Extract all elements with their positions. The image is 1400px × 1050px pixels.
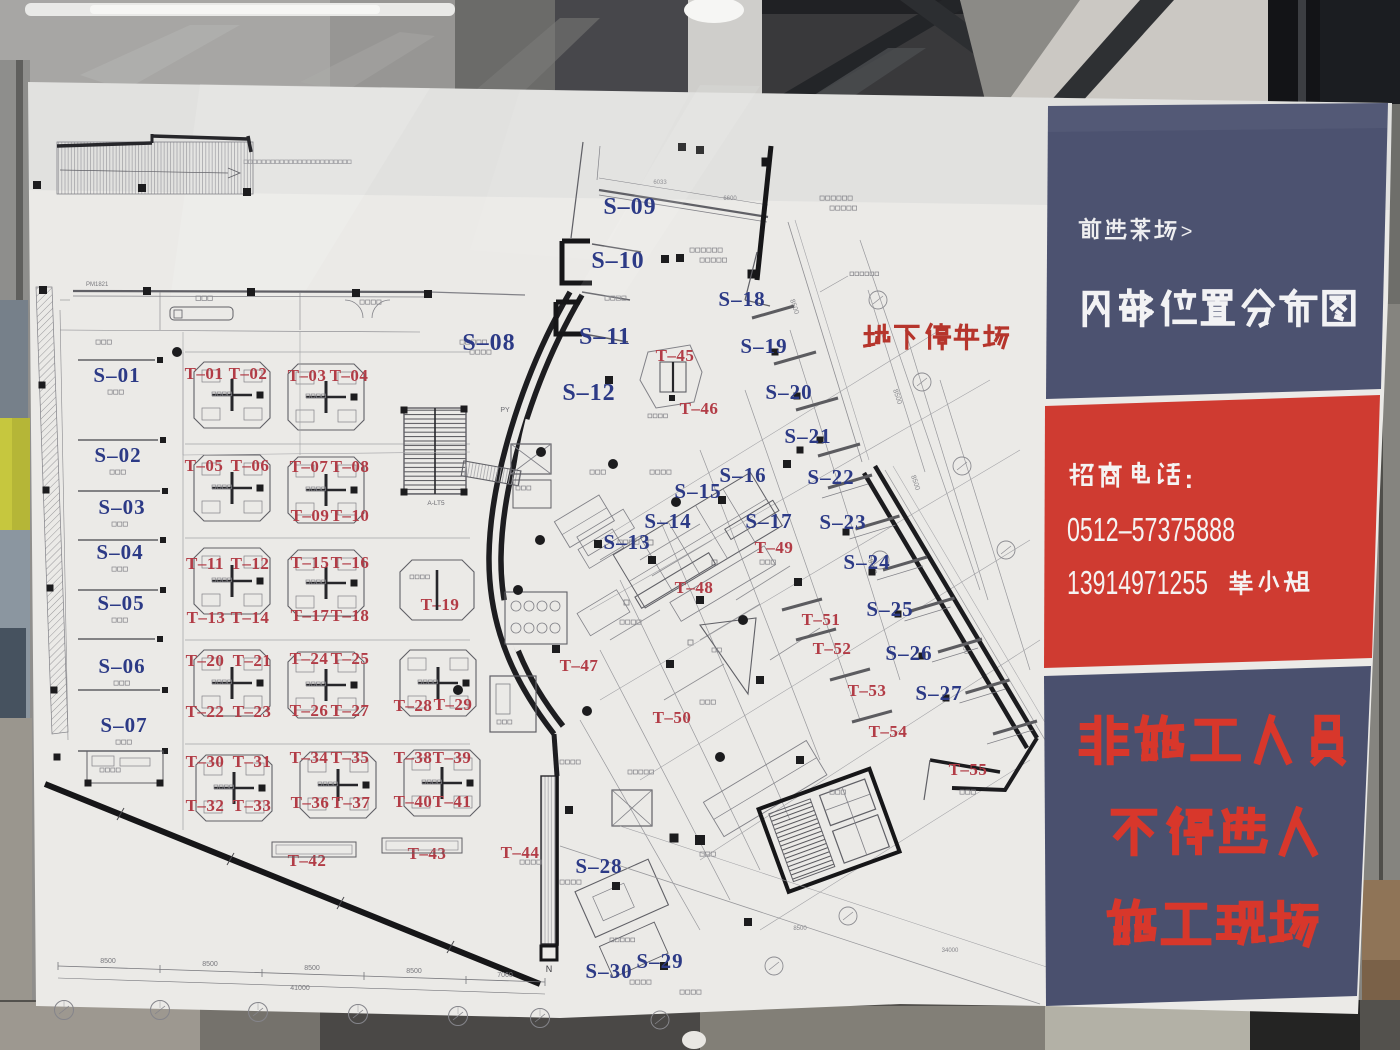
- svg-text:41000: 41000: [290, 985, 310, 992]
- svg-text:S–07: S–07: [100, 713, 147, 737]
- svg-text:S–28: S–28: [575, 854, 622, 878]
- svg-text:T–49: T–49: [755, 538, 794, 557]
- svg-text:S–29: S–29: [636, 949, 683, 973]
- svg-text:13914971255: 13914971255: [1067, 564, 1208, 601]
- svg-text:PM1821: PM1821: [86, 282, 109, 288]
- svg-text:S–09: S–09: [603, 194, 656, 220]
- svg-text:T–47: T–47: [560, 656, 599, 675]
- svg-text:T–19: T–19: [421, 595, 460, 614]
- svg-text:S–23: S–23: [819, 510, 866, 534]
- svg-text:T–13: T–13: [187, 608, 226, 627]
- svg-text:T–40: T–40: [394, 792, 433, 811]
- svg-text:0512–57375888: 0512–57375888: [1067, 511, 1235, 548]
- svg-text:S–20: S–20: [765, 380, 812, 404]
- svg-text:T–33: T–33: [233, 796, 272, 815]
- svg-text:N: N: [546, 964, 553, 974]
- svg-text:S–04: S–04: [96, 540, 143, 564]
- svg-text:S–13: S–13: [603, 530, 650, 554]
- svg-text:T–12: T–12: [231, 554, 270, 573]
- svg-text:8500: 8500: [406, 968, 422, 975]
- svg-text:S–27: S–27: [915, 681, 962, 705]
- svg-text::: :: [1184, 464, 1193, 494]
- svg-text:6600: 6600: [723, 196, 737, 202]
- svg-text:T–29: T–29: [434, 695, 473, 714]
- svg-text:T–01: T–01: [185, 364, 224, 383]
- svg-text:T–17: T–17: [291, 606, 330, 625]
- svg-text:S–24: S–24: [843, 550, 890, 574]
- svg-text:T–06: T–06: [231, 456, 270, 475]
- svg-text:T–36: T–36: [291, 793, 330, 812]
- svg-text:T–55: T–55: [949, 760, 988, 779]
- svg-text:T–05: T–05: [185, 456, 224, 475]
- svg-text:S–16: S–16: [719, 463, 766, 487]
- svg-text:T–37: T–37: [332, 793, 371, 812]
- svg-text:T–31: T–31: [233, 752, 272, 771]
- svg-text:T–15: T–15: [291, 553, 330, 572]
- svg-text:S–19: S–19: [740, 334, 787, 358]
- svg-text:T–24: T–24: [290, 649, 329, 668]
- svg-text:S–01: S–01: [93, 363, 140, 387]
- svg-text:S–03: S–03: [98, 495, 145, 519]
- svg-text:T–08: T–08: [331, 457, 370, 476]
- svg-text:S–25: S–25: [866, 597, 913, 621]
- svg-text:T–34: T–34: [290, 748, 329, 767]
- svg-text:8500: 8500: [100, 958, 116, 965]
- svg-text:T–11: T–11: [186, 554, 224, 573]
- svg-text:T–30: T–30: [186, 752, 225, 771]
- svg-text:S–05: S–05: [97, 591, 144, 615]
- svg-text:T–41: T–41: [433, 792, 472, 811]
- svg-text:T–51: T–51: [802, 610, 841, 629]
- svg-text:T–23: T–23: [233, 702, 272, 721]
- svg-text:T–03: T–03: [288, 366, 327, 385]
- svg-text:S–22: S–22: [807, 465, 854, 489]
- svg-text:T–52: T–52: [813, 639, 852, 658]
- svg-text:T–44: T–44: [501, 843, 540, 862]
- svg-text:T–35: T–35: [331, 748, 370, 767]
- svg-text:T–48: T–48: [675, 578, 714, 597]
- svg-text:T–38: T–38: [394, 748, 433, 767]
- svg-text:T–07: T–07: [290, 457, 329, 476]
- svg-text:S–26: S–26: [885, 641, 932, 665]
- svg-text:S–15: S–15: [674, 479, 721, 503]
- svg-text:>: >: [1181, 221, 1193, 243]
- svg-text:T–25: T–25: [331, 649, 370, 668]
- svg-text:T–02: T–02: [229, 364, 268, 383]
- svg-text:T–50: T–50: [653, 708, 692, 727]
- svg-text:T–10: T–10: [331, 506, 370, 525]
- svg-text:34000: 34000: [942, 948, 959, 954]
- svg-text:S–21: S–21: [784, 424, 831, 448]
- svg-text:T–32: T–32: [186, 796, 225, 815]
- svg-text:S–18: S–18: [718, 287, 765, 311]
- svg-text:T–54: T–54: [869, 722, 908, 741]
- svg-text:T–39: T–39: [433, 748, 472, 767]
- svg-text:S–17: S–17: [745, 509, 792, 533]
- svg-text:S–14: S–14: [644, 509, 691, 533]
- svg-text:PY: PY: [500, 407, 510, 414]
- svg-text:S–10: S–10: [591, 248, 644, 274]
- svg-text:S–02: S–02: [94, 443, 141, 467]
- svg-text:8500: 8500: [202, 961, 218, 968]
- svg-text:A-LT5: A-LT5: [427, 500, 445, 507]
- svg-text:T–16: T–16: [331, 553, 370, 572]
- svg-text:T–18: T–18: [331, 606, 370, 625]
- svg-text:T–46: T–46: [680, 399, 719, 418]
- svg-text:T–04: T–04: [330, 366, 369, 385]
- svg-text:T–09: T–09: [291, 506, 330, 525]
- svg-text:S–11: S–11: [579, 324, 631, 350]
- svg-text:S–08: S–08: [462, 330, 515, 356]
- svg-text:S–30: S–30: [585, 959, 632, 983]
- svg-text:S–06: S–06: [98, 654, 145, 678]
- svg-text:T–22: T–22: [186, 702, 225, 721]
- svg-text:T–53: T–53: [848, 681, 887, 700]
- svg-text:T–14: T–14: [231, 608, 270, 627]
- svg-text:8500: 8500: [304, 965, 320, 972]
- svg-text:T–20: T–20: [186, 651, 225, 670]
- svg-text:T–26: T–26: [290, 701, 329, 720]
- svg-text:T–21: T–21: [233, 651, 272, 670]
- svg-text:8500: 8500: [793, 926, 807, 932]
- svg-text:T–27: T–27: [331, 701, 370, 720]
- svg-text:T–45: T–45: [656, 346, 695, 365]
- svg-text:7060: 7060: [497, 972, 513, 979]
- svg-text:T–28: T–28: [394, 696, 433, 715]
- svg-text:S–12: S–12: [562, 380, 615, 406]
